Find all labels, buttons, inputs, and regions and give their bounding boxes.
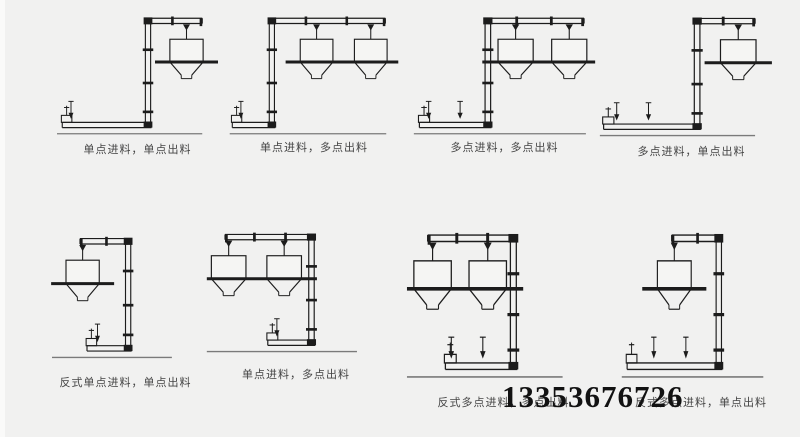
diagram-label-4: 多点进料，单点出料 [598, 143, 785, 159]
elevator-drawing-reverse-multi-feed-multi-discharge [405, 220, 602, 392]
diagram-cell-2 [228, 6, 400, 146]
diagram-cell-3 [412, 6, 597, 146]
diagram-cell-7 [405, 220, 602, 392]
diagram-cell-1 [50, 6, 225, 146]
diagram-label-1: 单点进料，单点出料 [50, 141, 225, 157]
elevator-drawing-reverse-single-feed-single-discharge [38, 226, 213, 370]
elevator-drawing-single-feed-multi-discharge [228, 6, 400, 146]
diagram-label-2: 单点进料，多点出料 [228, 139, 400, 155]
page-edge-strip [0, 0, 5, 437]
diagram-cell-4 [598, 6, 785, 148]
diagram-label-5: 反式单点进料，单点出料 [38, 374, 213, 390]
elevator-drawing-reverse-single-feed-multi-discharge [205, 222, 387, 364]
phone-number: 13353676726 [502, 379, 684, 415]
diagram-cell-6 [205, 222, 387, 364]
diagram-label-3: 多点进料，多点出料 [412, 139, 597, 155]
elevator-drawing-reverse-multi-feed-single-discharge [612, 220, 790, 392]
elevator-drawing-multi-feed-multi-discharge [412, 6, 597, 146]
elevator-drawing-multi-feed-single-discharge [598, 6, 785, 148]
elevator-drawing-single-feed-single-discharge [50, 6, 225, 146]
diagram-label-6: 单点进料，多点出料 [205, 366, 387, 382]
diagram-cell-5 [38, 226, 213, 370]
diagram-cell-8 [612, 220, 790, 392]
